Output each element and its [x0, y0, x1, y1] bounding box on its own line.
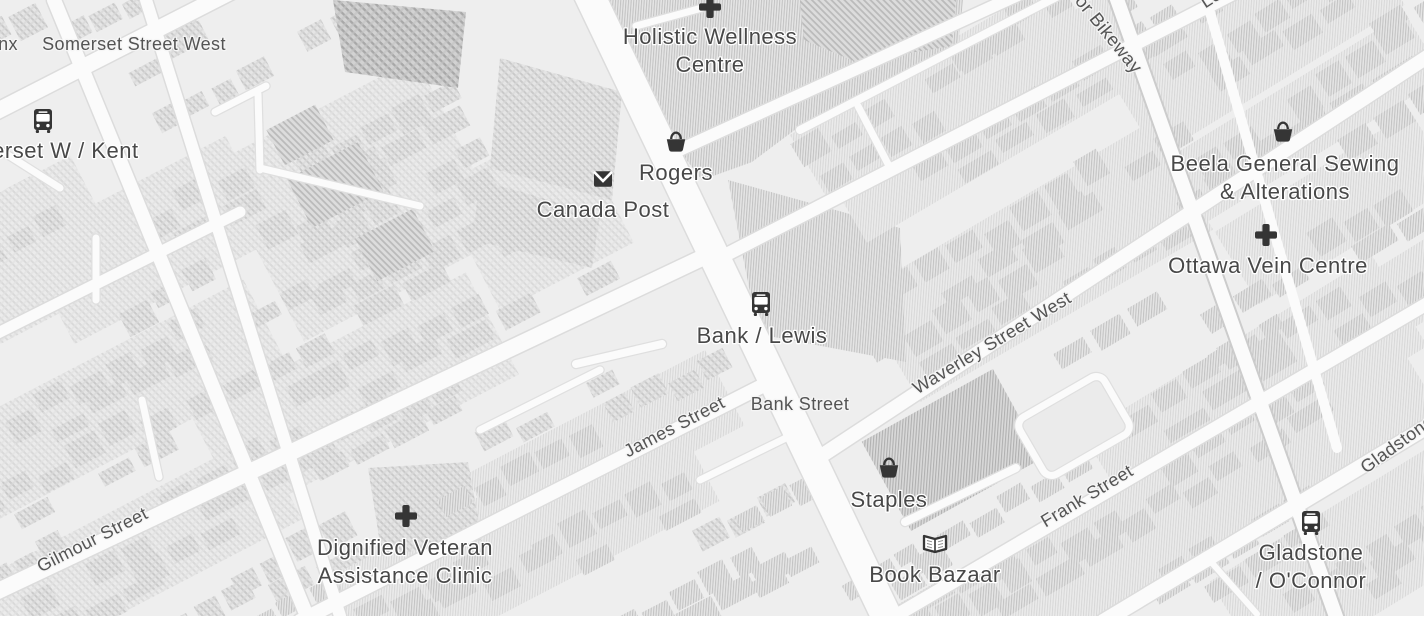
svg-text:& Alterations: & Alterations: [1220, 179, 1350, 204]
svg-text:Gladstone: Gladstone: [1259, 540, 1364, 565]
svg-text:Ottawa Vein Centre: Ottawa Vein Centre: [1168, 253, 1368, 278]
svg-text:Holistic Wellness: Holistic Wellness: [623, 24, 797, 49]
svg-text:Book Bazaar: Book Bazaar: [869, 562, 1000, 587]
svg-text:Centre: Centre: [675, 52, 744, 77]
svg-text:Staples: Staples: [851, 487, 928, 512]
svg-text:Dignified Veteran: Dignified Veteran: [317, 535, 493, 560]
svg-text:Assistance Clinic: Assistance Clinic: [318, 563, 493, 588]
svg-text:Bank Street: Bank Street: [751, 394, 849, 414]
svg-text:nx: nx: [0, 34, 18, 54]
svg-text:Canada Post: Canada Post: [537, 197, 670, 222]
svg-text:Somerset W / Kent: Somerset W / Kent: [0, 138, 139, 163]
svg-text:Beela General Sewing: Beela General Sewing: [1171, 151, 1400, 176]
svg-text:Rogers: Rogers: [639, 160, 713, 185]
svg-text:Somerset Street West: Somerset Street West: [42, 34, 226, 54]
svg-text:/ O'Connor: / O'Connor: [1256, 568, 1367, 593]
svg-text:Bank / Lewis: Bank / Lewis: [697, 323, 828, 348]
